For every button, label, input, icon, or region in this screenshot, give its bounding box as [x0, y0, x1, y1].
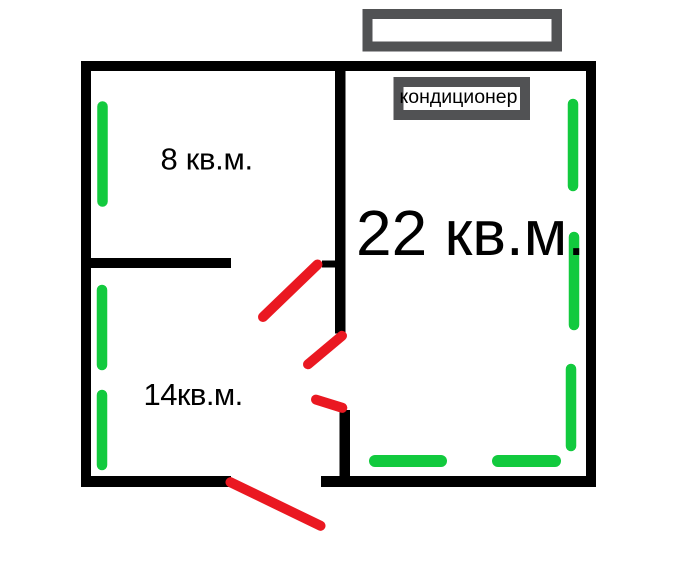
svg-text:кондиционер: кондиционер [400, 86, 518, 108]
svg-text:кв.м.: кв.м. [445, 197, 586, 269]
svg-text:8 кв.м.: 8 кв.м. [161, 142, 253, 177]
svg-text:14кв.м.: 14кв.м. [144, 377, 243, 412]
svg-text:22: 22 [356, 197, 427, 269]
